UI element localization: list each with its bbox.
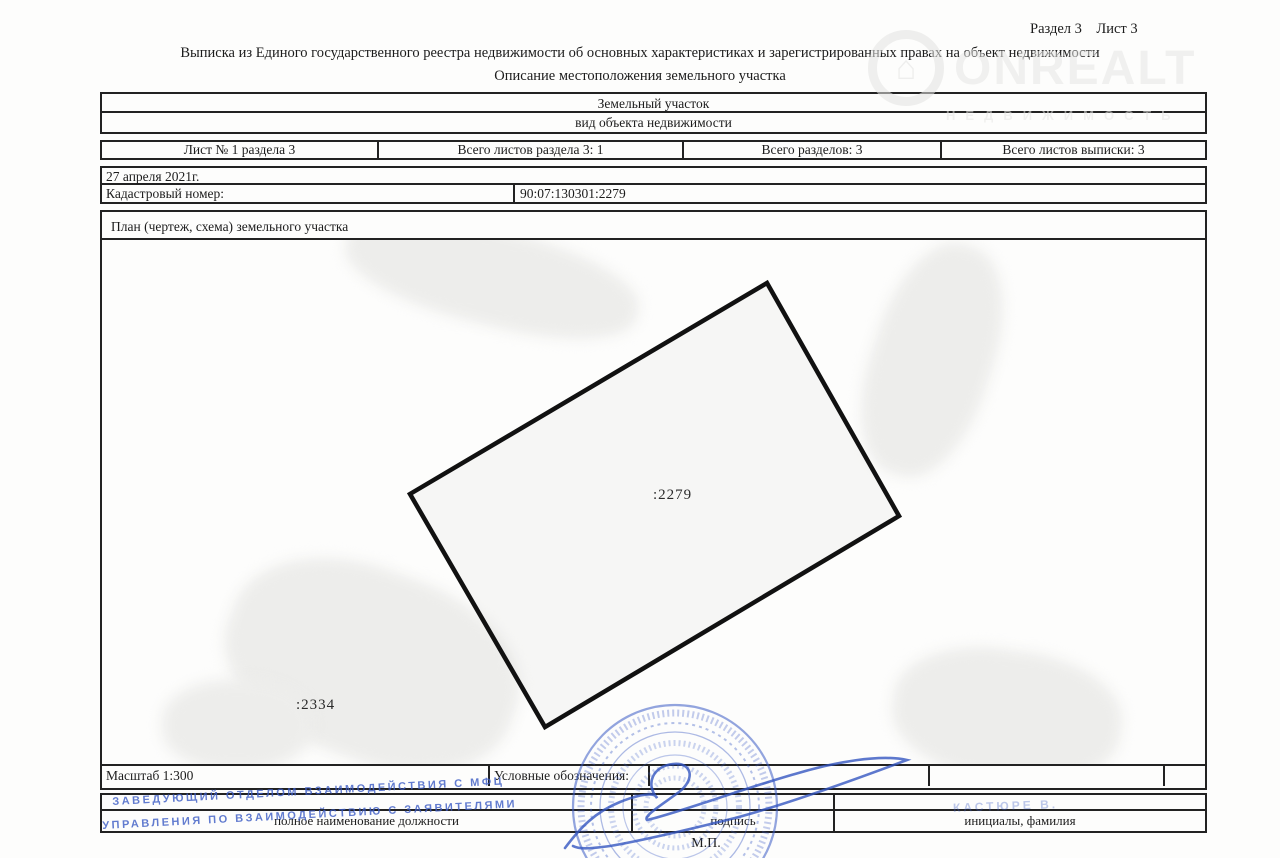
document-title: Выписка из Единого государственного реес… xyxy=(0,45,1280,62)
cadastral-number-label: Кадастровый номер: xyxy=(102,185,515,202)
position-caption: полное наименование должности xyxy=(102,811,633,831)
extract-sheets-total-cell: Всего листов выписки: 3 xyxy=(942,142,1205,158)
legend-empty-cell xyxy=(1165,766,1205,786)
sheets-counters-table: Лист № 1 раздела 3 Всего листов раздела … xyxy=(100,140,1207,160)
name-fill-cell xyxy=(835,795,1205,811)
object-type-caption: вид объекта недвижимости xyxy=(102,113,1205,132)
plan-header: План (чертеж, схема) земельного участка xyxy=(102,212,1205,240)
object-type-value: Земельный участок xyxy=(102,94,1205,113)
legend-empty-cell xyxy=(650,766,930,786)
scale-legend-row: Масштаб 1:300 Условные обозначения: xyxy=(102,764,1205,786)
signature-fill-cell xyxy=(633,795,835,811)
extract-date: 27 апреля 2021г. xyxy=(102,168,1205,185)
parcel-cadastral-label: :2279 xyxy=(653,487,692,504)
sections-total-cell: Всего разделов: 3 xyxy=(684,142,942,158)
date-cadastral-table: 27 апреля 2021г. Кадастровый номер: 90:0… xyxy=(100,166,1207,204)
cadastral-number-value: 90:07:130301:2279 xyxy=(515,185,1205,202)
legend-empty-cell xyxy=(930,766,1165,786)
legend-label: Условные обозначения: xyxy=(490,766,650,786)
plan-table: План (чертеж, схема) земельного участка … xyxy=(100,210,1207,790)
adjacent-parcel-label: :2334 xyxy=(296,697,335,714)
section-sheets-total-cell: Всего листов раздела 3: 1 xyxy=(379,142,684,158)
seal-place-mark: М.П. xyxy=(656,836,756,852)
object-type-table: Земельный участок вид объекта недвижимос… xyxy=(100,92,1207,134)
sheet-number-cell: Лист № 1 раздела 3 xyxy=(102,142,379,158)
name-caption: инициалы, фамилия xyxy=(835,811,1205,831)
scale-label: Масштаб 1:300 xyxy=(102,766,490,786)
document-subtitle: Описание местоположения земельного участ… xyxy=(0,68,1280,85)
plan-drawing-area: :2279 :2334 xyxy=(102,240,1205,764)
signature-caption: подпись xyxy=(633,811,835,831)
section-sheet-header: Раздел 3 Лист 3 xyxy=(1030,21,1138,38)
position-fill-cell xyxy=(102,795,633,811)
signature-table: полное наименование должности подпись ин… xyxy=(100,793,1207,833)
